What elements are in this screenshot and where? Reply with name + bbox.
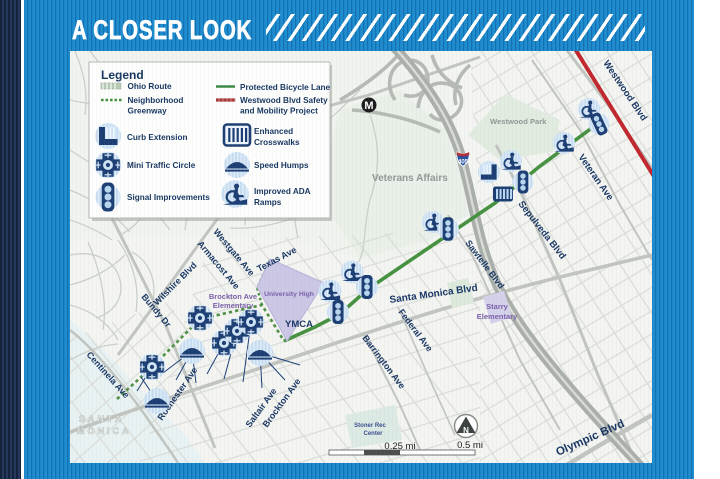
svg-text:Mini Traffic Circle: Mini Traffic Circle	[127, 161, 196, 170]
svg-text:MONICA: MONICA	[77, 426, 132, 436]
svg-text:Center: Center	[363, 431, 383, 437]
svg-text:N: N	[463, 426, 469, 435]
svg-text:Elementary: Elementary	[213, 301, 254, 310]
svg-text:Improved ADA: Improved ADA	[254, 187, 311, 196]
svg-text:Westwood Park: Westwood Park	[490, 117, 547, 126]
svg-text:Elementary: Elementary	[477, 312, 518, 321]
svg-text:Crosswalks: Crosswalks	[254, 138, 300, 147]
svg-text:Enhanced: Enhanced	[254, 127, 293, 136]
svg-text:405: 405	[458, 160, 469, 166]
svg-text:SANTA: SANTA	[79, 414, 124, 424]
svg-text:Legend: Legend	[101, 68, 144, 82]
svg-text:Neighborhood: Neighborhood	[128, 96, 184, 105]
svg-text:Curb Extension: Curb Extension	[127, 133, 188, 142]
svg-text:Greenway: Greenway	[128, 107, 168, 116]
svg-text:Ohio Route: Ohio Route	[128, 82, 173, 91]
svg-text:0.25 mi: 0.25 mi	[384, 441, 415, 452]
svg-text:University High: University High	[264, 291, 314, 298]
svg-text:Signal Improvements: Signal Improvements	[127, 193, 210, 202]
svg-text:0.5 mi: 0.5 mi	[457, 440, 483, 451]
svg-text:Speed Humps: Speed Humps	[254, 161, 309, 170]
svg-text:Ramps: Ramps	[254, 198, 282, 207]
svg-text:M: M	[364, 100, 373, 112]
svg-text:Brockton Ave: Brockton Ave	[209, 292, 257, 301]
svg-text:YMCA: YMCA	[285, 319, 313, 330]
svg-text:Veterans Affairs: Veterans Affairs	[372, 173, 448, 184]
svg-text:Stoner Rec: Stoner Rec	[354, 423, 386, 429]
svg-text:Starry: Starry	[486, 302, 509, 311]
svg-text:Protected Bicycle Lane: Protected Bicycle Lane	[240, 83, 331, 92]
svg-text:Westwood Blvd Safety: Westwood Blvd Safety	[240, 96, 328, 105]
svg-text:and Mobility Project: and Mobility Project	[240, 107, 318, 116]
